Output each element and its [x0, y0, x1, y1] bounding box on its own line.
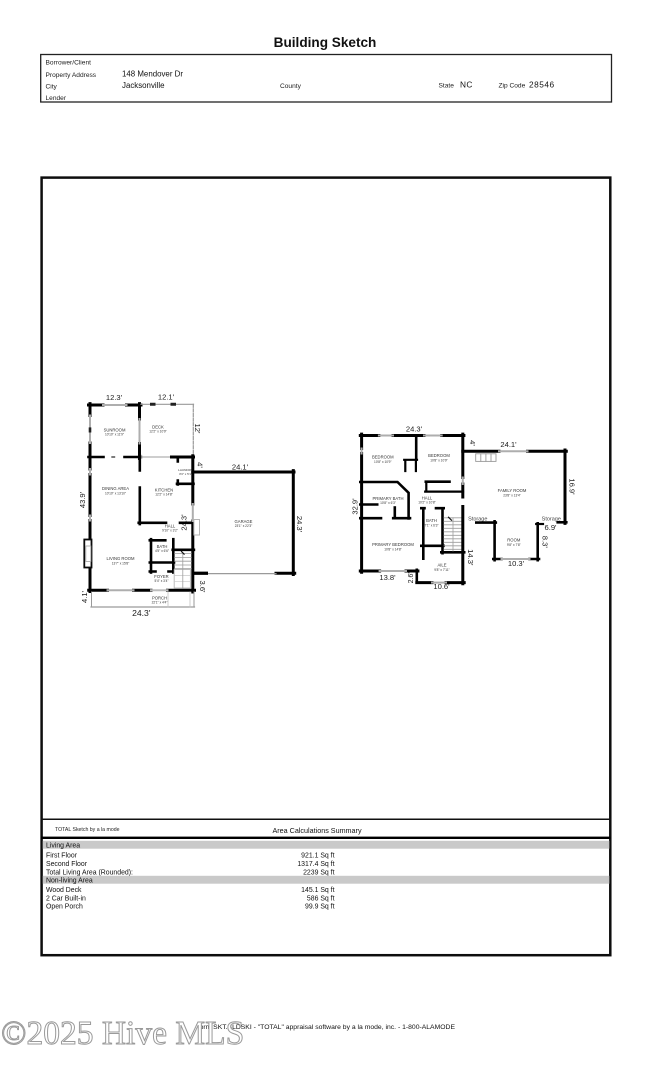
svg-text:586 Sq ft: 586 Sq ft	[307, 895, 335, 902]
svg-text:Area Calculations Summary: Area Calculations Summary	[272, 826, 361, 835]
svg-text:2 Car Built-in: 2 Car Built-in	[46, 895, 86, 902]
svg-text:1317.4 Sq ft: 1317.4 Sq ft	[297, 861, 334, 868]
svg-text:Wood Deck: Wood Deck	[46, 887, 82, 894]
svg-text:32.9': 32.9'	[350, 498, 359, 515]
svg-text:43.9': 43.9'	[78, 491, 87, 508]
svg-text:Zip Code: Zip Code	[499, 82, 526, 89]
svg-text:28546: 28546	[529, 80, 555, 90]
svg-text:99.9 Sq ft: 99.9 Sq ft	[305, 904, 335, 911]
svg-text:9'8" x 7'11": 9'8" x 7'11"	[434, 568, 449, 572]
svg-text:NC: NC	[460, 80, 473, 90]
svg-text:Building Sketch: Building Sketch	[274, 35, 377, 50]
svg-text:10'8" x 14'8": 10'8" x 14'8"	[384, 547, 401, 551]
svg-text:145.1 Sq ft: 145.1 Sq ft	[301, 887, 334, 894]
svg-text:©2025 Hive MLS: ©2025 Hive MLS	[1, 1015, 244, 1052]
svg-text:9'10" x 3'2": 9'10" x 3'2"	[162, 528, 178, 532]
svg-text:Second Floor: Second Floor	[46, 861, 88, 868]
svg-text:10.3': 10.3'	[508, 559, 525, 568]
svg-text:24.1': 24.1'	[232, 463, 249, 472]
svg-text:2.6': 2.6'	[408, 572, 415, 583]
svg-text:10'2" x 10'8": 10'2" x 10'8"	[418, 501, 435, 505]
svg-text:16.9': 16.9'	[568, 478, 577, 495]
svg-text:24.3': 24.3'	[132, 608, 151, 618]
svg-text:14.3': 14.3'	[466, 549, 475, 566]
svg-text:12'2" x 14'8": 12'2" x 14'8"	[155, 493, 172, 497]
svg-text:4': 4'	[468, 440, 477, 446]
svg-text:4': 4'	[196, 462, 205, 468]
svg-text:10'8" x 6'3": 10'8" x 6'3"	[380, 501, 396, 505]
svg-text:Lender: Lender	[46, 95, 67, 102]
svg-text:State: State	[439, 82, 455, 89]
svg-text:4'5" x 6'6": 4'5" x 6'6"	[155, 549, 169, 553]
svg-text:24.3': 24.3'	[406, 424, 423, 433]
svg-text:4.1': 4.1'	[80, 590, 89, 603]
svg-text:13.8': 13.8'	[379, 573, 396, 582]
svg-text:24.1': 24.1'	[500, 440, 517, 449]
svg-text:7'1" x 6'3": 7'1" x 6'3"	[425, 523, 439, 527]
svg-text:Non-living Area: Non-living Area	[46, 878, 93, 885]
svg-text:10'8" x 10'9": 10'8" x 10'9"	[430, 458, 447, 462]
svg-text:12.1': 12.1'	[158, 393, 175, 402]
svg-text:Property Address: Property Address	[46, 72, 97, 79]
svg-text:3.6': 3.6'	[198, 580, 207, 593]
svg-text:22'1" x 4'4": 22'1" x 4'4"	[152, 601, 168, 605]
svg-text:Open Porch: Open Porch	[46, 904, 83, 911]
svg-text:County: County	[280, 83, 302, 90]
svg-text:City: City	[46, 84, 58, 91]
svg-text:6.9': 6.9'	[544, 523, 557, 532]
svg-text:12.3': 12.3'	[106, 393, 123, 402]
svg-text:9'8" x 7'8": 9'8" x 7'8"	[507, 543, 521, 547]
svg-text:12'2" x 10'9": 12'2" x 10'9"	[149, 430, 166, 434]
svg-text:13'7" x 15'8": 13'7" x 15'8"	[112, 561, 129, 565]
svg-text:Jacksonville: Jacksonville	[122, 81, 165, 90]
svg-text:2239 Sq ft: 2239 Sq ft	[303, 869, 335, 876]
svg-text:TOTAL Sketch by a la mode: TOTAL Sketch by a la mode	[55, 827, 120, 833]
svg-text:5'4" x 3'4": 5'4" x 3'4"	[155, 579, 169, 583]
svg-text:23'8" x 13'4": 23'8" x 13'4"	[503, 493, 520, 497]
svg-text:921.1 Sq ft: 921.1 Sq ft	[301, 853, 334, 860]
svg-text:24.3': 24.3'	[295, 516, 304, 533]
svg-text:3'3" x 5'1": 3'3" x 5'1"	[179, 472, 192, 476]
svg-text:8.3': 8.3'	[541, 536, 550, 549]
svg-text:10'10" x 11'9": 10'10" x 11'9"	[105, 433, 124, 437]
svg-text:First Floor: First Floor	[46, 853, 78, 860]
svg-text:Living Area: Living Area	[46, 843, 80, 850]
svg-text:10'10" x 13'10": 10'10" x 13'10"	[105, 491, 126, 495]
svg-text:10'8" x 10'9": 10'8" x 10'9"	[374, 460, 391, 464]
svg-text:148 Mendover Dr: 148 Mendover Dr	[122, 69, 183, 78]
svg-text:Borrower/Client: Borrower/Client	[46, 60, 92, 67]
svg-text:Total Living Area (Rounded):: Total Living Area (Rounded):	[46, 869, 133, 876]
svg-text:23'1" x 22'3": 23'1" x 22'3"	[235, 524, 252, 528]
svg-text:12': 12'	[193, 424, 202, 434]
